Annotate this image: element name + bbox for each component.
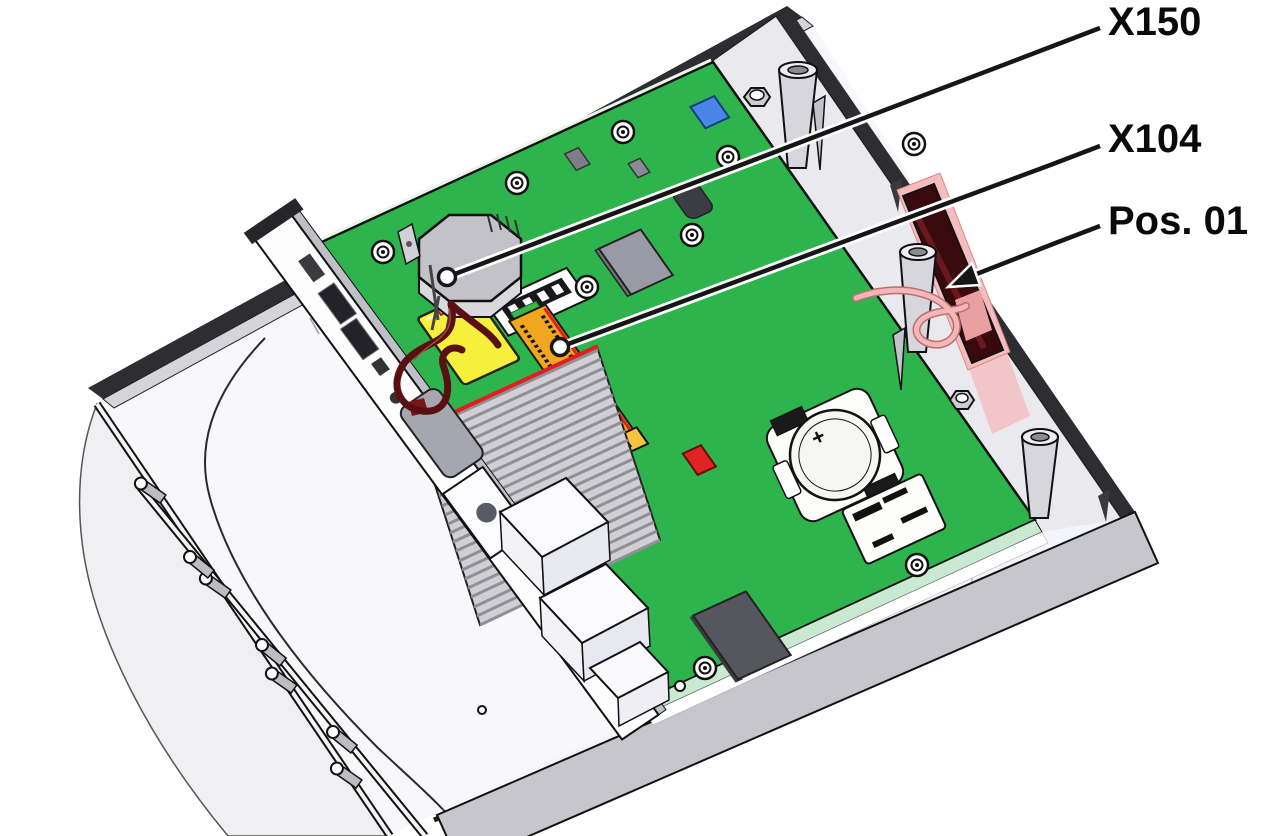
callout-label-x104: X104 <box>1108 119 1201 159</box>
enclosure-illustration: + <box>0 0 1280 836</box>
screw <box>506 172 528 194</box>
callout-point-x150 <box>439 269 456 286</box>
mounting-hole <box>478 706 486 714</box>
screw <box>681 224 703 246</box>
screw <box>903 133 925 155</box>
callout-label-pos01: Pos. 01 <box>1108 201 1248 241</box>
hex-nut <box>744 88 770 106</box>
screw <box>372 241 394 263</box>
screw <box>906 554 928 576</box>
mounting-hole <box>675 681 685 691</box>
screw <box>612 121 634 143</box>
screw <box>694 657 716 679</box>
figure-canvas: + <box>0 0 1280 836</box>
callout-label-x150: X150 <box>1108 2 1201 42</box>
screw <box>576 276 598 298</box>
hex-nut <box>950 391 974 409</box>
callout-point-x104 <box>552 339 569 356</box>
leader-line-pos01 <box>974 226 1100 275</box>
